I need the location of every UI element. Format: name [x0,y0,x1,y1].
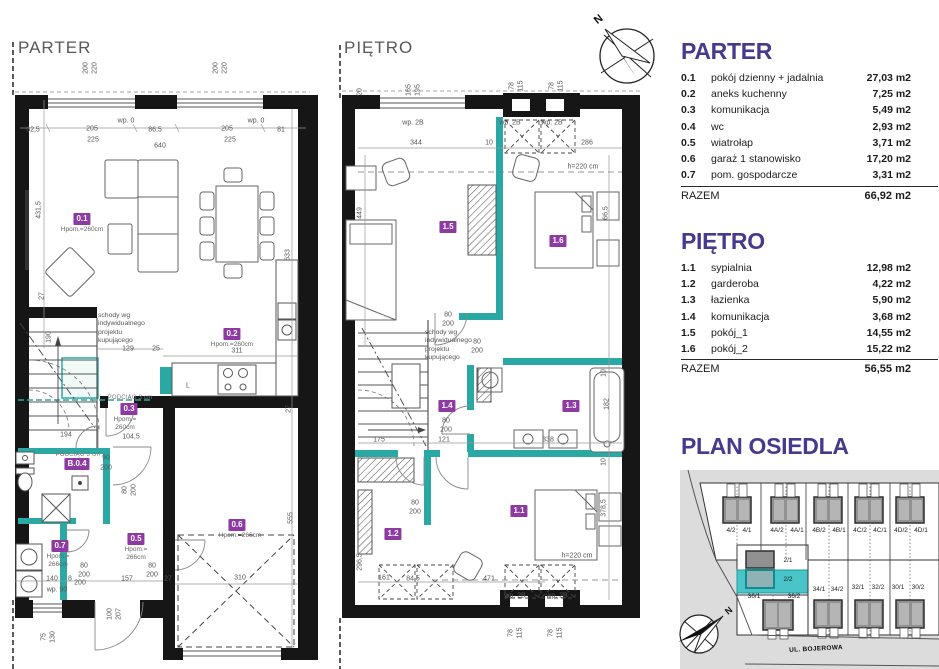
dim-label: 200 [131,484,138,496]
dim-label: 80 [148,563,156,570]
total-label: RAZEM [681,190,720,202]
dim-label: 449 [357,207,364,219]
parter-plan-title: PARTER [18,38,91,58]
dim-label: 86,5 [148,127,162,134]
plot-label: 2/2 [783,577,792,584]
total-value: 66,92 m2 [865,190,911,202]
dim-label: 78 [548,629,555,637]
dim-label: 200 [78,572,90,579]
dim-label: wp. 2B [402,120,423,127]
plot-label: 36/2 [788,594,801,601]
parter-stairs-note: schody wg indywidualnego projektu kupują… [98,312,145,346]
dim-label: wp. 2B [546,593,567,600]
dim-label: 175 [373,437,385,444]
dim-label: 27 [39,292,46,300]
room-badge-0.1: 0.1 [73,213,90,225]
dim-label: h=220 cm [568,164,599,171]
dim-label: 115 [558,80,565,91]
dim-label: 115 [557,627,564,638]
dim-label: 25 [152,346,160,353]
dim-label: 205 [221,126,233,133]
legend-row: 0.5wiatrołap3,71 m2 [681,135,911,151]
pietro-stairs-note: schody wg indywidualnego projektu kupują… [425,329,472,363]
dim-label: 194 [60,432,72,439]
dim-label: wp. 2B [499,120,520,127]
room-badge-1.4: 1.4 [438,400,455,412]
dim-label: 10 [485,140,493,147]
dim-label: 80 [411,500,419,507]
dim-label: 84,5 [406,576,420,583]
room-height-note: Hpom.= 266cm [47,553,70,569]
room-badge-1.2: 1.2 [384,528,401,540]
dim-label: 200 [442,321,454,328]
plot-label: 34/1 [813,587,826,594]
total-value: 56,55 m2 [865,363,911,375]
room-height-note: Hpom.=260cm [61,226,103,234]
room-height-note: Hpom.= 266cm [125,546,148,562]
dim-label: 157 [121,576,133,583]
dim-label: 378,5 [601,499,608,517]
dim-label: PODCIĄG 3 cm [108,395,153,401]
legend-row: 0.3komunikacja5,49 m2 [681,102,911,118]
room-height-note: Hpom.=266cm [219,532,261,540]
dim-label: 66,5 [603,206,610,220]
room-badge-1.6: 1.6 [549,235,566,247]
dim-label: 8 [68,576,72,583]
room-badge-0.2: 0.2 [223,328,240,340]
dim-label: 200 [440,427,452,434]
dim-label: 10 [601,369,608,377]
dim-label: 78 [508,629,515,637]
room-badge-1.1: 1.1 [510,505,527,517]
legend-row: 1.1sypialnia12,98 m2 [681,260,911,276]
dim-label: 200 [74,580,86,587]
dim-label: 161 [378,575,390,582]
dim-label: 115 [518,80,525,91]
room-badge-1.3: 1.3 [562,400,579,412]
room-badge-0.7: 0.7 [51,540,68,552]
dim-label: 205 [86,126,98,133]
dim-label: 80 [444,312,452,319]
plot-label: 4B/1 [832,528,845,535]
legend-row: 1.4komunikacja3,68 m2 [681,309,911,325]
dim-label: 140 [46,576,58,583]
dim-label: 90 [102,455,110,462]
pietro-plan-title: PIĘTRO [344,38,413,58]
room-badge-0.5: 0.5 [127,533,144,545]
dim-label: 75 [41,633,48,641]
dim-label: 200 [146,572,158,579]
dim-label: wp. 0 [118,118,135,125]
dim-label: 104,5 [122,434,140,441]
dim-label: 225 [224,137,236,144]
plot-label: 30/1 [892,585,905,592]
total-label: RAZEM [681,363,720,375]
dim-label: 200 [100,465,112,472]
legend-parter-total: RAZEM 66,92 m2 [681,190,911,202]
room-badge-0.3: 0.3 [120,403,137,415]
plot-label: 4D/1 [914,528,928,535]
legend-pietro-total: RAZEM 56,55 m2 [681,363,911,375]
tv [25,190,29,270]
dim-label: 344 [410,140,422,147]
dim-label: 471 [483,576,495,583]
dim-label: wp. 90 [47,587,68,594]
dim-label: 220 [222,62,229,74]
dim-label: 195 [415,84,422,96]
room-badge-1.5: 1.5 [439,221,456,233]
plot-label: 2/1 [783,558,792,565]
dim-label: 200 [471,348,483,355]
north-arrow [600,29,654,83]
site-plan-title: PLAN OSIEDLA [681,433,849,460]
dim-label: 200 [213,62,220,74]
legend-pietro-title: PIĘTRO [681,228,765,255]
divider [681,359,938,360]
dim-label: 190 [46,331,53,343]
dim-label: wp. 2B [504,593,525,600]
dim-label: 129 [122,346,134,353]
dim-label: 200 [409,509,421,516]
plot-label: 32/1 [852,585,865,592]
legend-row: 0.2aneks kuchenny7,25 m2 [681,86,911,102]
plot-label: 36/1 [748,594,761,601]
legend-row: 0.7pom. gospodarcze3,31 m2 [681,167,911,183]
dim-label: 10 [601,458,608,466]
plot-label: 32/2 [872,585,885,592]
dim-label: 80 [442,418,450,425]
dim-label: wp. 2B [541,120,562,127]
dim-label: 182 [604,398,611,410]
plot-label: 4C/2 [853,528,867,535]
dim-label: 640 [154,143,166,150]
room-badge-0.6: 0.6 [228,519,245,531]
plot-label: 30/2 [912,585,925,592]
site-map [678,470,939,669]
dim-label: 100 [107,608,114,620]
dim-label: 78 [509,82,516,90]
dim-label: 80 [122,486,129,494]
divider [681,186,938,187]
legend-row: 0.4wc2,93 m2 [681,119,911,135]
room-badge-B.0.4: B.0.4 [64,458,89,470]
dim-label: h=220 cm [562,553,593,560]
legend-row: 1.3łazienka5,90 m2 [681,292,911,308]
dim-label: 338 [542,437,554,444]
legend-row: 0.1pokój dzienny + jadalnia27,03 m2 [681,70,911,86]
plot-label: 4/2 [726,528,735,535]
dim-label: 225 [87,137,99,144]
stair-landing [62,358,98,398]
legend-row: 1.5pokój_114,55 m2 [681,325,911,341]
dim-label: 310 [234,575,246,582]
dim-label: 115 [517,627,524,638]
dim-label: 296,5 [357,553,364,571]
legend-row: 1.2garderoba4,22 m2 [681,276,911,292]
dim-label: 207 [116,608,123,620]
room-height-note: Hpom.=260cm [211,341,253,349]
plot-label: 4D/2 [894,528,908,535]
dim-label: wp. 0 [248,118,265,125]
dim-label: 431,5 [36,201,43,219]
plot-label: 4A/1 [790,528,803,535]
dim-label: 633 [285,249,292,261]
dim-label: 27 [286,405,293,413]
floor-plan-sheet: 200220200220wp. 0wp. 062,520522586,52052… [0,0,939,669]
legend-row: 1.6pokój_215,22 m2 [681,341,911,357]
legend-row: 0.6garaż 1 stanowisko17,20 m2 [681,151,911,167]
plot-label: 34/2 [831,587,844,594]
legend-parter-title: PARTER [681,38,772,65]
dim-label: 20 [357,88,364,96]
legend-parter-rows: 0.1pokój dzienny + jadalnia27,03 m20.2an… [681,70,911,183]
dim-label: 200 [83,62,90,74]
dim-label: 121 [438,437,450,444]
dim-label: 27 [164,576,172,583]
dim-label: 81 [277,127,285,134]
legend-pietro-rows: 1.1sypialnia12,98 m21.2garderoba4,22 m21… [681,260,911,357]
dim-label: 62,5 [26,127,40,134]
dim-label: L [186,383,190,390]
dim-label: 130 [50,631,57,643]
dim-label: 78 [549,82,556,90]
plot-label: 4A/2 [770,528,783,535]
room-height-note: Hpom.= 260cm [114,416,137,432]
dim-label: 80 [80,563,88,570]
garage-outline [178,535,294,647]
dim-label: 165 [406,84,413,96]
plot-label: 4C/1 [873,528,887,535]
plot-label: 4B/2 [812,528,825,535]
dim-label: 80 [473,339,481,346]
plot-label: 4/1 [742,528,751,535]
dim-label: 220 [92,62,99,74]
dim-label: 286 [581,140,593,147]
dim-label: 555 [288,512,295,524]
